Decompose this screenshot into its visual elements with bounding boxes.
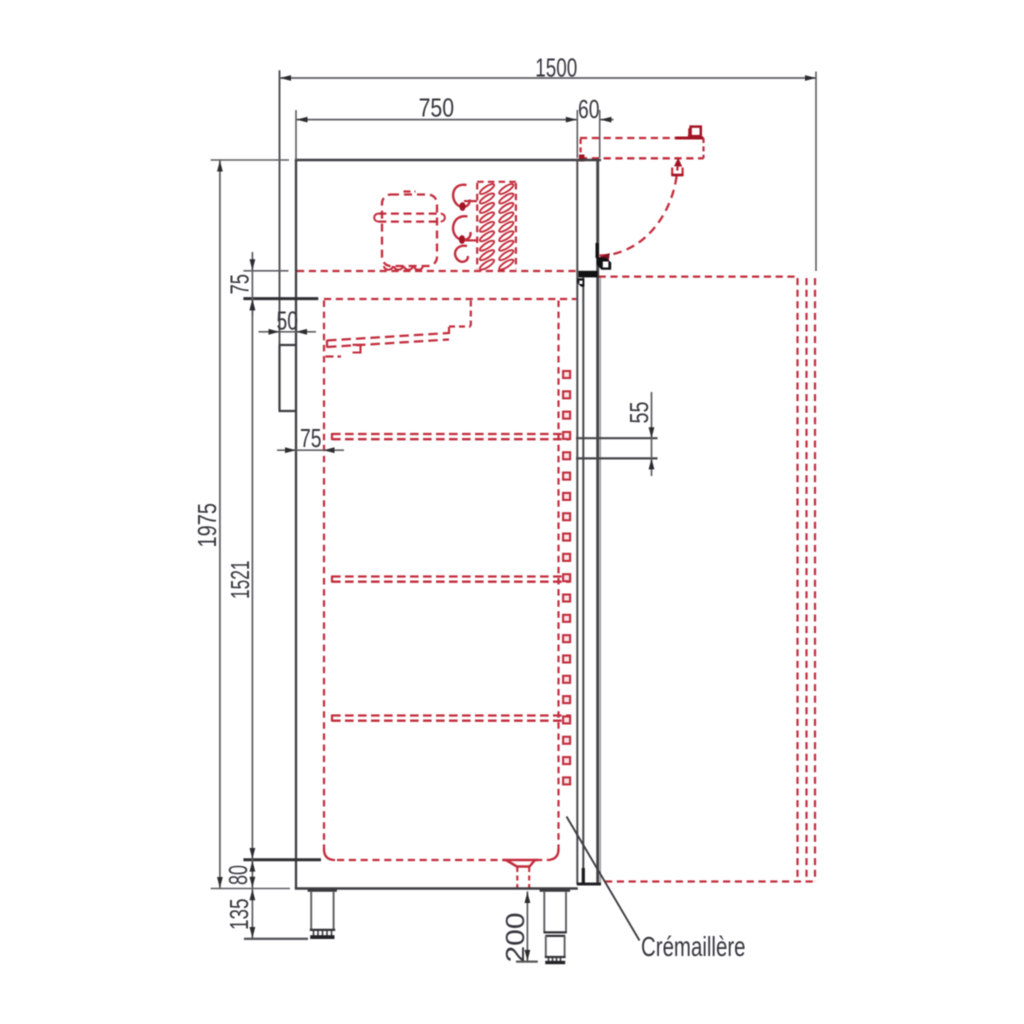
svg-text:80: 80 bbox=[223, 865, 253, 885]
svg-text:750: 750 bbox=[419, 93, 455, 123]
svg-text:Crémaillère: Crémaillère bbox=[641, 931, 746, 962]
svg-text:55: 55 bbox=[624, 402, 654, 424]
svg-text:200: 200 bbox=[500, 913, 530, 963]
svg-text:50: 50 bbox=[277, 306, 299, 336]
svg-text:1975: 1975 bbox=[192, 503, 222, 548]
svg-text:75: 75 bbox=[300, 423, 322, 453]
svg-text:1500: 1500 bbox=[535, 53, 577, 83]
svg-text:60: 60 bbox=[578, 94, 600, 124]
svg-text:135: 135 bbox=[224, 899, 254, 931]
svg-text:1521: 1521 bbox=[225, 561, 255, 600]
svg-text:75: 75 bbox=[225, 274, 255, 295]
